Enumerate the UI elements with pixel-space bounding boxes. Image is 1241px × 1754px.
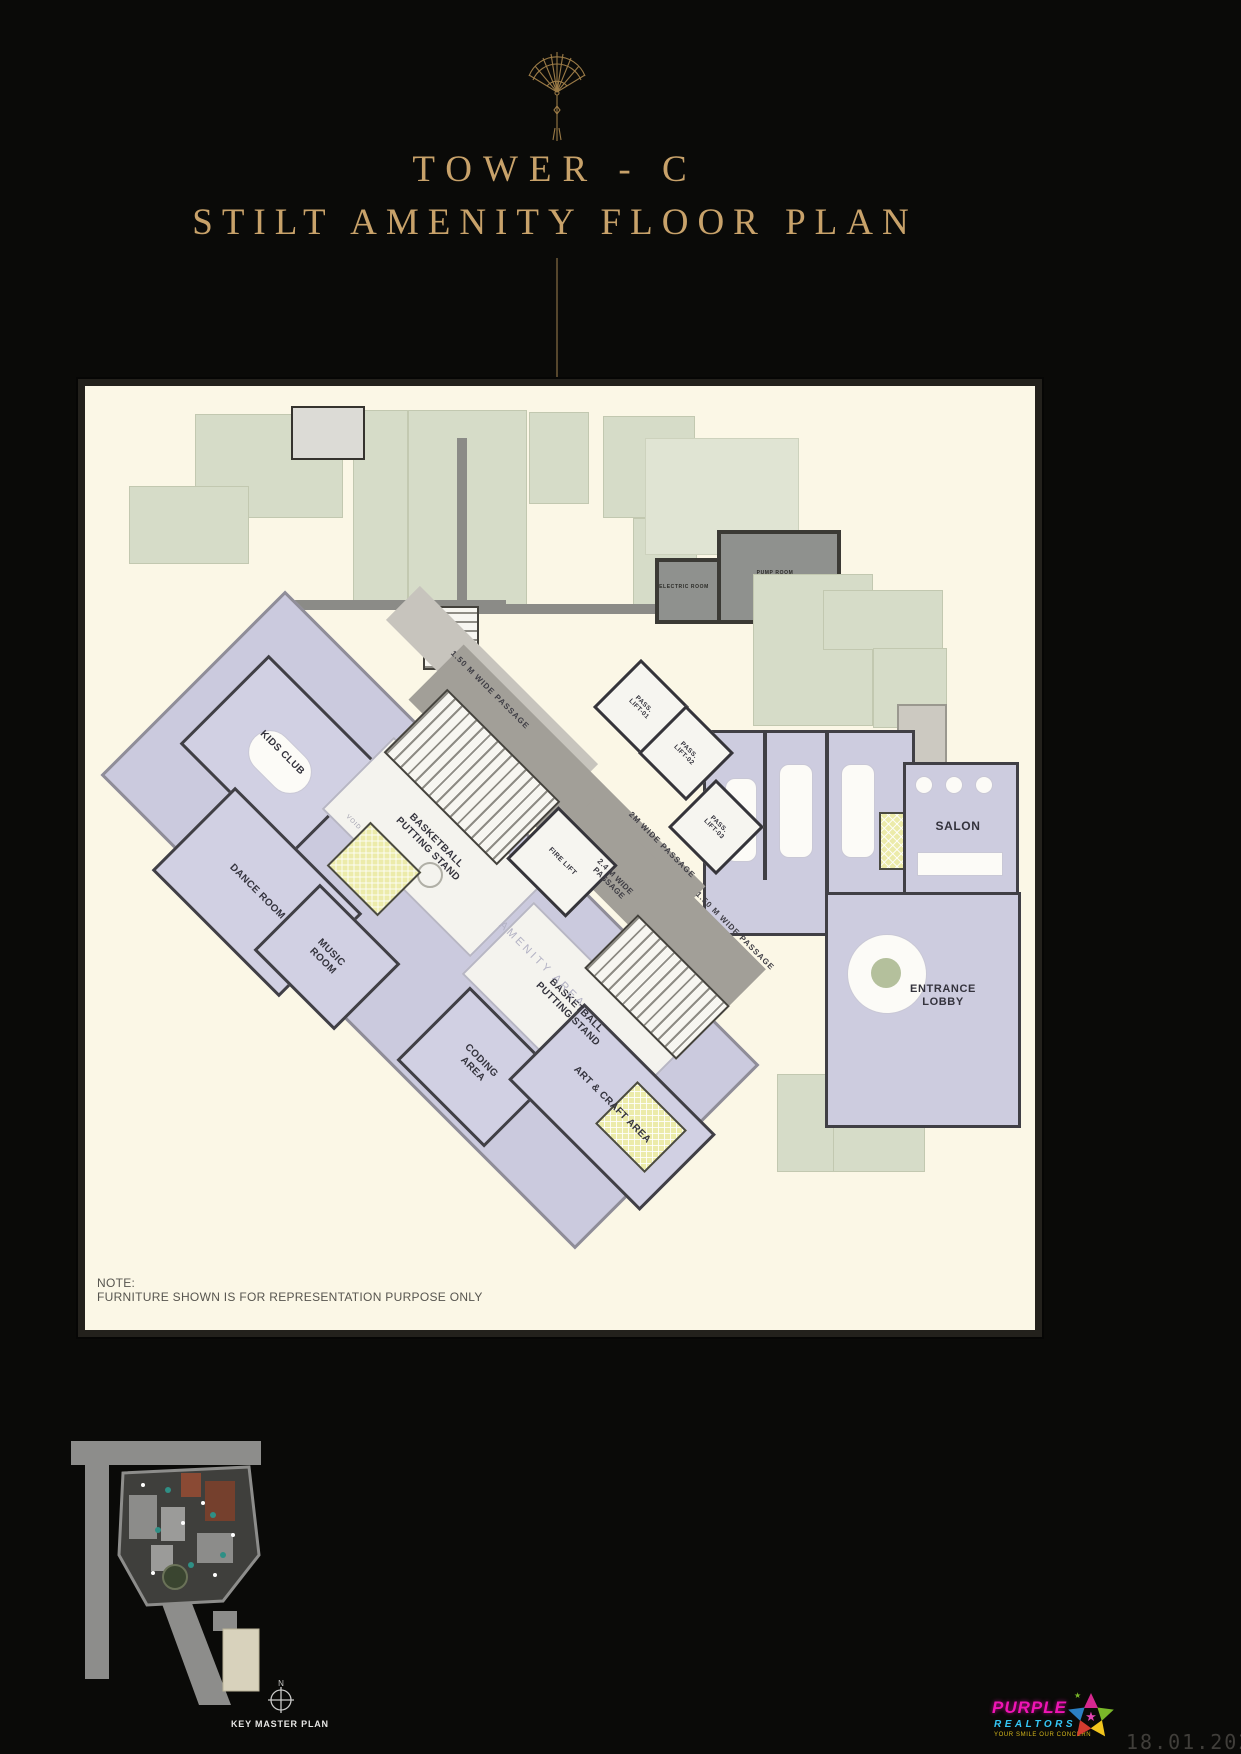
page-subtitle: STILT AMENITY FLOOR PLAN [55, 201, 1055, 244]
note-title: NOTE: [97, 1276, 135, 1290]
landscape-area [823, 590, 943, 650]
service-room [291, 406, 365, 460]
massage-bed [779, 764, 813, 858]
north-compass-icon: N [266, 1678, 296, 1716]
massage-bed [841, 764, 875, 858]
wall [763, 730, 767, 880]
page-title: TOWER - C [55, 148, 1055, 191]
salon-chair [945, 776, 963, 794]
electric-room-label: ELECTRIC ROOM [658, 584, 710, 590]
logo-star-icon: ★ ★ [1066, 1688, 1116, 1744]
title-divider-line [556, 258, 558, 379]
salon-chair [975, 776, 993, 794]
key-master-plan-map [63, 1415, 268, 1705]
date-stamp: 18.01.2026 [1126, 1730, 1241, 1754]
salon-label: SALON [936, 819, 981, 833]
salon-chair [915, 776, 933, 794]
landscape-area [353, 410, 527, 608]
wall [473, 604, 673, 614]
folding-fan-icon [525, 44, 589, 144]
logo-name2: REALTORS [994, 1719, 1076, 1730]
landscape-area [129, 486, 249, 564]
entrance-lobby [825, 892, 1021, 1128]
salon-counter [917, 852, 1003, 876]
wall [457, 438, 467, 604]
svg-text:★: ★ [1074, 1691, 1081, 1700]
svg-text:★: ★ [1085, 1709, 1097, 1724]
key-master-plan-caption: KEY MASTER PLAN [231, 1719, 329, 1729]
brochure-page: TOWER - C STILT AMENITY FLOOR PLAN ELECT… [0, 0, 1241, 1754]
north-letter: N [278, 1679, 284, 1688]
wall-line [407, 410, 409, 606]
landscape-area [529, 412, 589, 504]
electric-room [655, 558, 721, 624]
logo-name: PURPLE [992, 1698, 1067, 1718]
floor-plan-board: ELECTRIC ROOM PUMP ROOM SPA SALON ENTRAN… [78, 379, 1042, 1337]
note-body: FURNITURE SHOWN IS FOR REPRESENTATION PU… [97, 1290, 483, 1304]
entrance-lobby-label: ENTRANCE LOBBY [893, 983, 993, 1009]
